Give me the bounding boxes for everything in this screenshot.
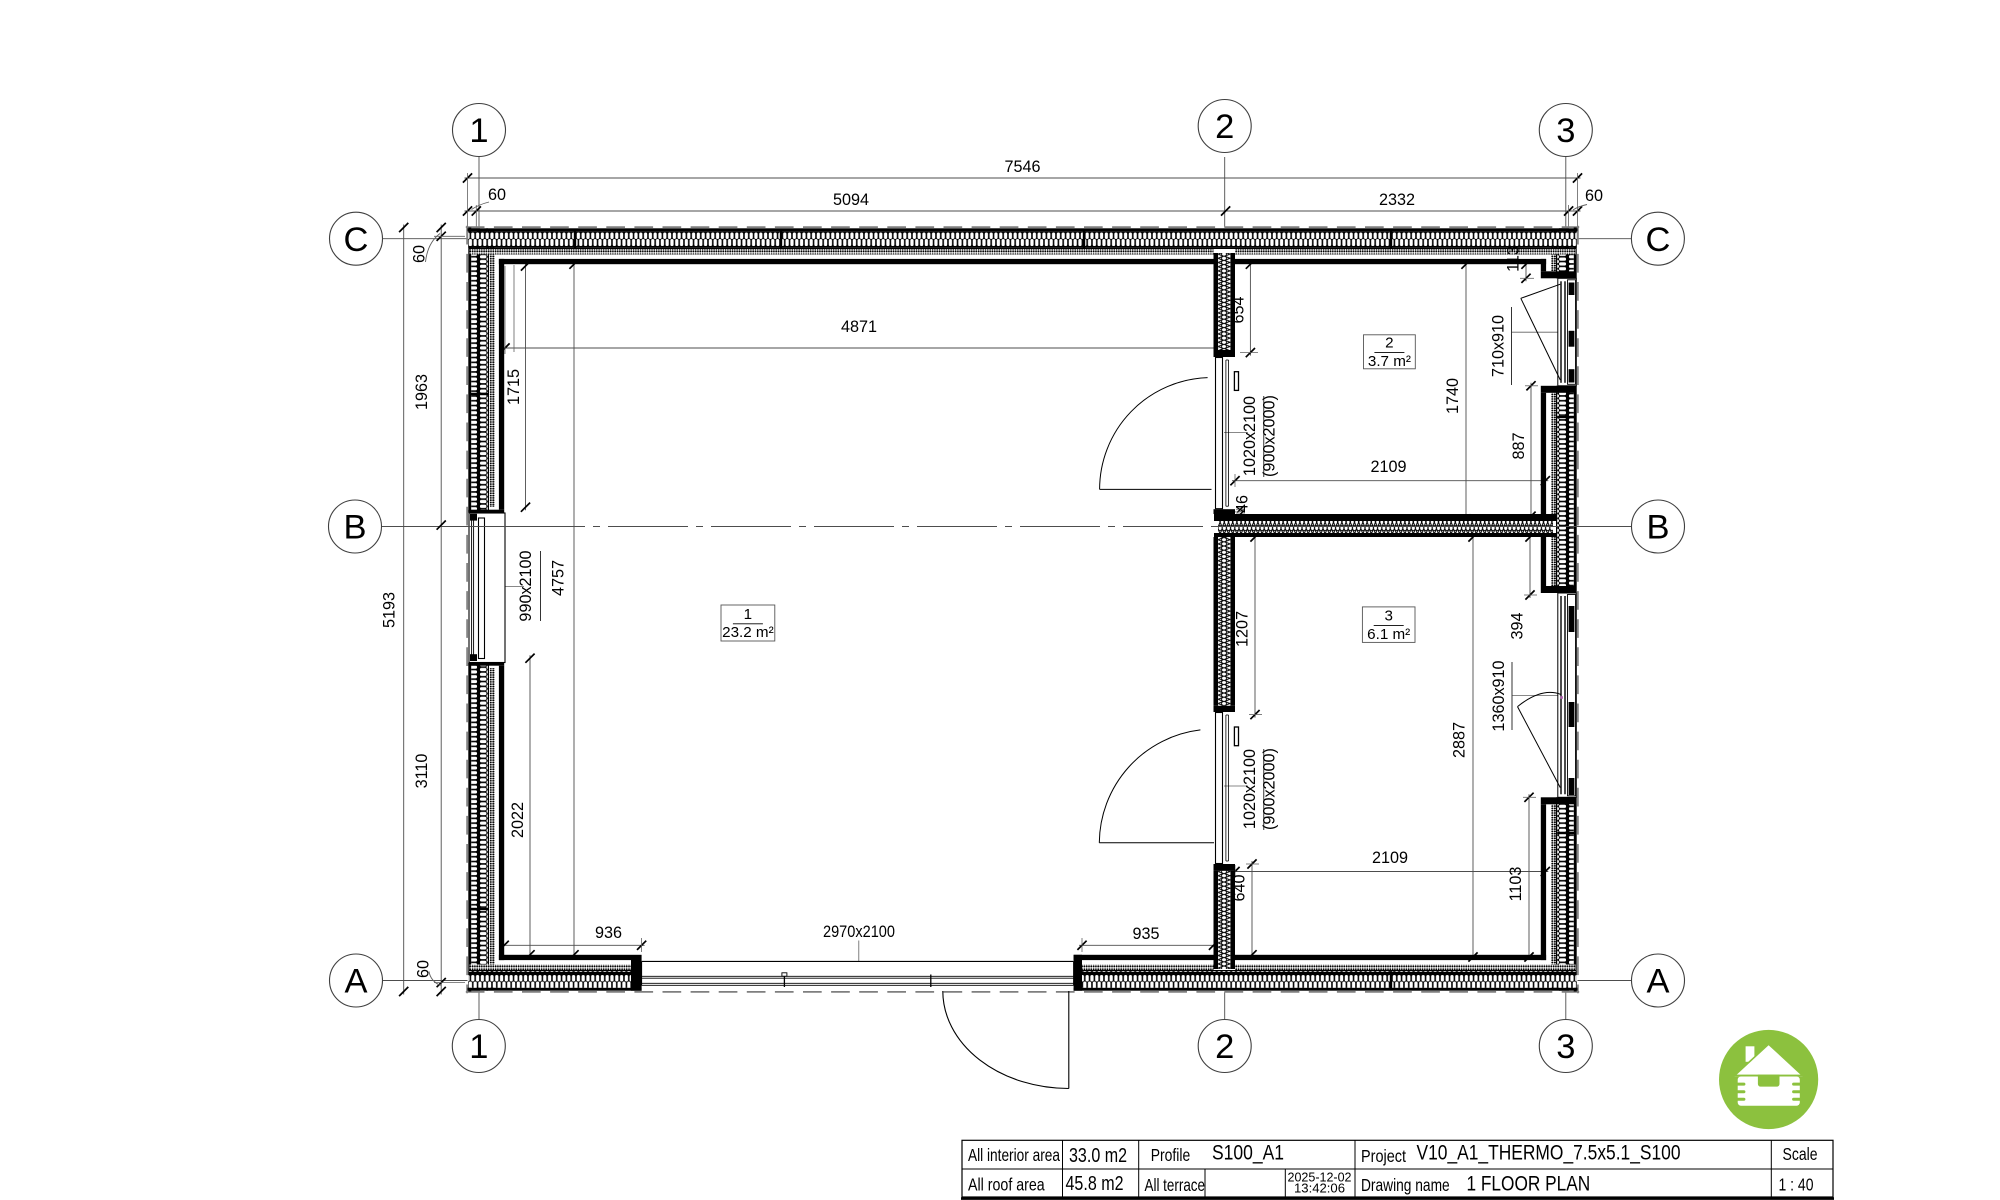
svg-text:A: A [1646, 963, 1669, 1001]
svg-text:1 FLOOR PLAN: 1 FLOOR PLAN [1467, 1172, 1591, 1196]
svg-text:7546: 7546 [1004, 158, 1040, 176]
svg-text:6.1 m²: 6.1 m² [1367, 626, 1410, 643]
svg-text:60: 60 [488, 186, 506, 204]
svg-text:1207: 1207 [1234, 611, 1252, 647]
svg-text:710x910: 710x910 [1490, 315, 1508, 377]
svg-text:1360x910: 1360x910 [1490, 660, 1508, 731]
svg-text:2109: 2109 [1372, 849, 1408, 867]
svg-text:936: 936 [595, 924, 622, 942]
svg-text:B: B [343, 509, 366, 547]
svg-text:5193: 5193 [381, 592, 399, 628]
svg-text:2: 2 [1215, 108, 1234, 146]
svg-text:A: A [344, 963, 367, 1001]
svg-text:4757: 4757 [550, 560, 568, 596]
svg-text:1715: 1715 [505, 369, 523, 405]
svg-text:60: 60 [411, 245, 429, 263]
svg-text:All terrace: All terrace [1145, 1175, 1206, 1195]
svg-text:1020x2100: 1020x2100 [1241, 749, 1259, 829]
svg-text:C: C [1645, 221, 1670, 259]
svg-text:935: 935 [1132, 925, 1159, 943]
svg-text:(900x2000): (900x2000) [1261, 395, 1279, 477]
svg-text:3110: 3110 [413, 754, 431, 789]
svg-text:Drawing name: Drawing name [1361, 1175, 1450, 1195]
svg-text:B: B [1646, 509, 1669, 547]
svg-text:46: 46 [1234, 495, 1252, 513]
svg-text:1: 1 [469, 112, 488, 150]
svg-text:All roof area: All roof area [968, 1175, 1045, 1195]
svg-text:3: 3 [1384, 607, 1392, 624]
svg-text:5094: 5094 [833, 191, 869, 209]
svg-text:S100_A1: S100_A1 [1212, 1141, 1284, 1165]
svg-text:2109: 2109 [1370, 458, 1406, 476]
svg-text:640: 640 [1231, 874, 1249, 901]
svg-text:1020x2100: 1020x2100 [1241, 396, 1259, 476]
svg-text:2022: 2022 [509, 802, 527, 838]
svg-text:2: 2 [1385, 335, 1393, 352]
svg-text:(900x2000): (900x2000) [1261, 748, 1279, 830]
svg-text:1: 1 [469, 1028, 488, 1066]
svg-text:45.8 m2: 45.8 m2 [1066, 1172, 1124, 1195]
svg-text:23.2 m²: 23.2 m² [722, 624, 774, 641]
svg-text:Scale: Scale [1783, 1144, 1818, 1164]
svg-text:V10_A1_THERMO_7.5x5.1_S100: V10_A1_THERMO_7.5x5.1_S100 [1417, 1141, 1681, 1165]
svg-text:33.0 m2: 33.0 m2 [1069, 1144, 1127, 1167]
svg-text:3: 3 [1556, 112, 1575, 150]
svg-text:2887: 2887 [1451, 722, 1469, 758]
svg-text:1103: 1103 [1507, 867, 1525, 902]
svg-text:1: 1 [744, 606, 752, 623]
svg-text:All interior area: All interior area [968, 1145, 1060, 1165]
svg-text:113: 113 [1505, 246, 1523, 272]
svg-text:394: 394 [1509, 612, 1527, 639]
svg-text:2: 2 [1215, 1028, 1234, 1066]
svg-text:Profile: Profile [1151, 1145, 1191, 1165]
svg-text:13:42:06: 13:42:06 [1294, 1182, 1345, 1196]
svg-text:2332: 2332 [1379, 191, 1415, 209]
svg-text:60: 60 [1585, 187, 1603, 205]
svg-text:60: 60 [415, 960, 433, 978]
svg-text:1740: 1740 [1444, 378, 1462, 414]
svg-text:Project: Project [1361, 1146, 1406, 1166]
svg-text:887: 887 [1510, 432, 1528, 459]
svg-text:2970x2100: 2970x2100 [823, 923, 895, 941]
svg-text:1 : 40: 1 : 40 [1779, 1175, 1814, 1195]
svg-text:3.7 m²: 3.7 m² [1368, 353, 1411, 370]
svg-text:990x2100: 990x2100 [517, 550, 535, 621]
svg-text:3: 3 [1556, 1028, 1575, 1066]
svg-text:1963: 1963 [413, 374, 431, 410]
svg-text:4871: 4871 [841, 318, 877, 336]
svg-text:654: 654 [1230, 296, 1248, 323]
svg-text:C: C [344, 221, 369, 259]
